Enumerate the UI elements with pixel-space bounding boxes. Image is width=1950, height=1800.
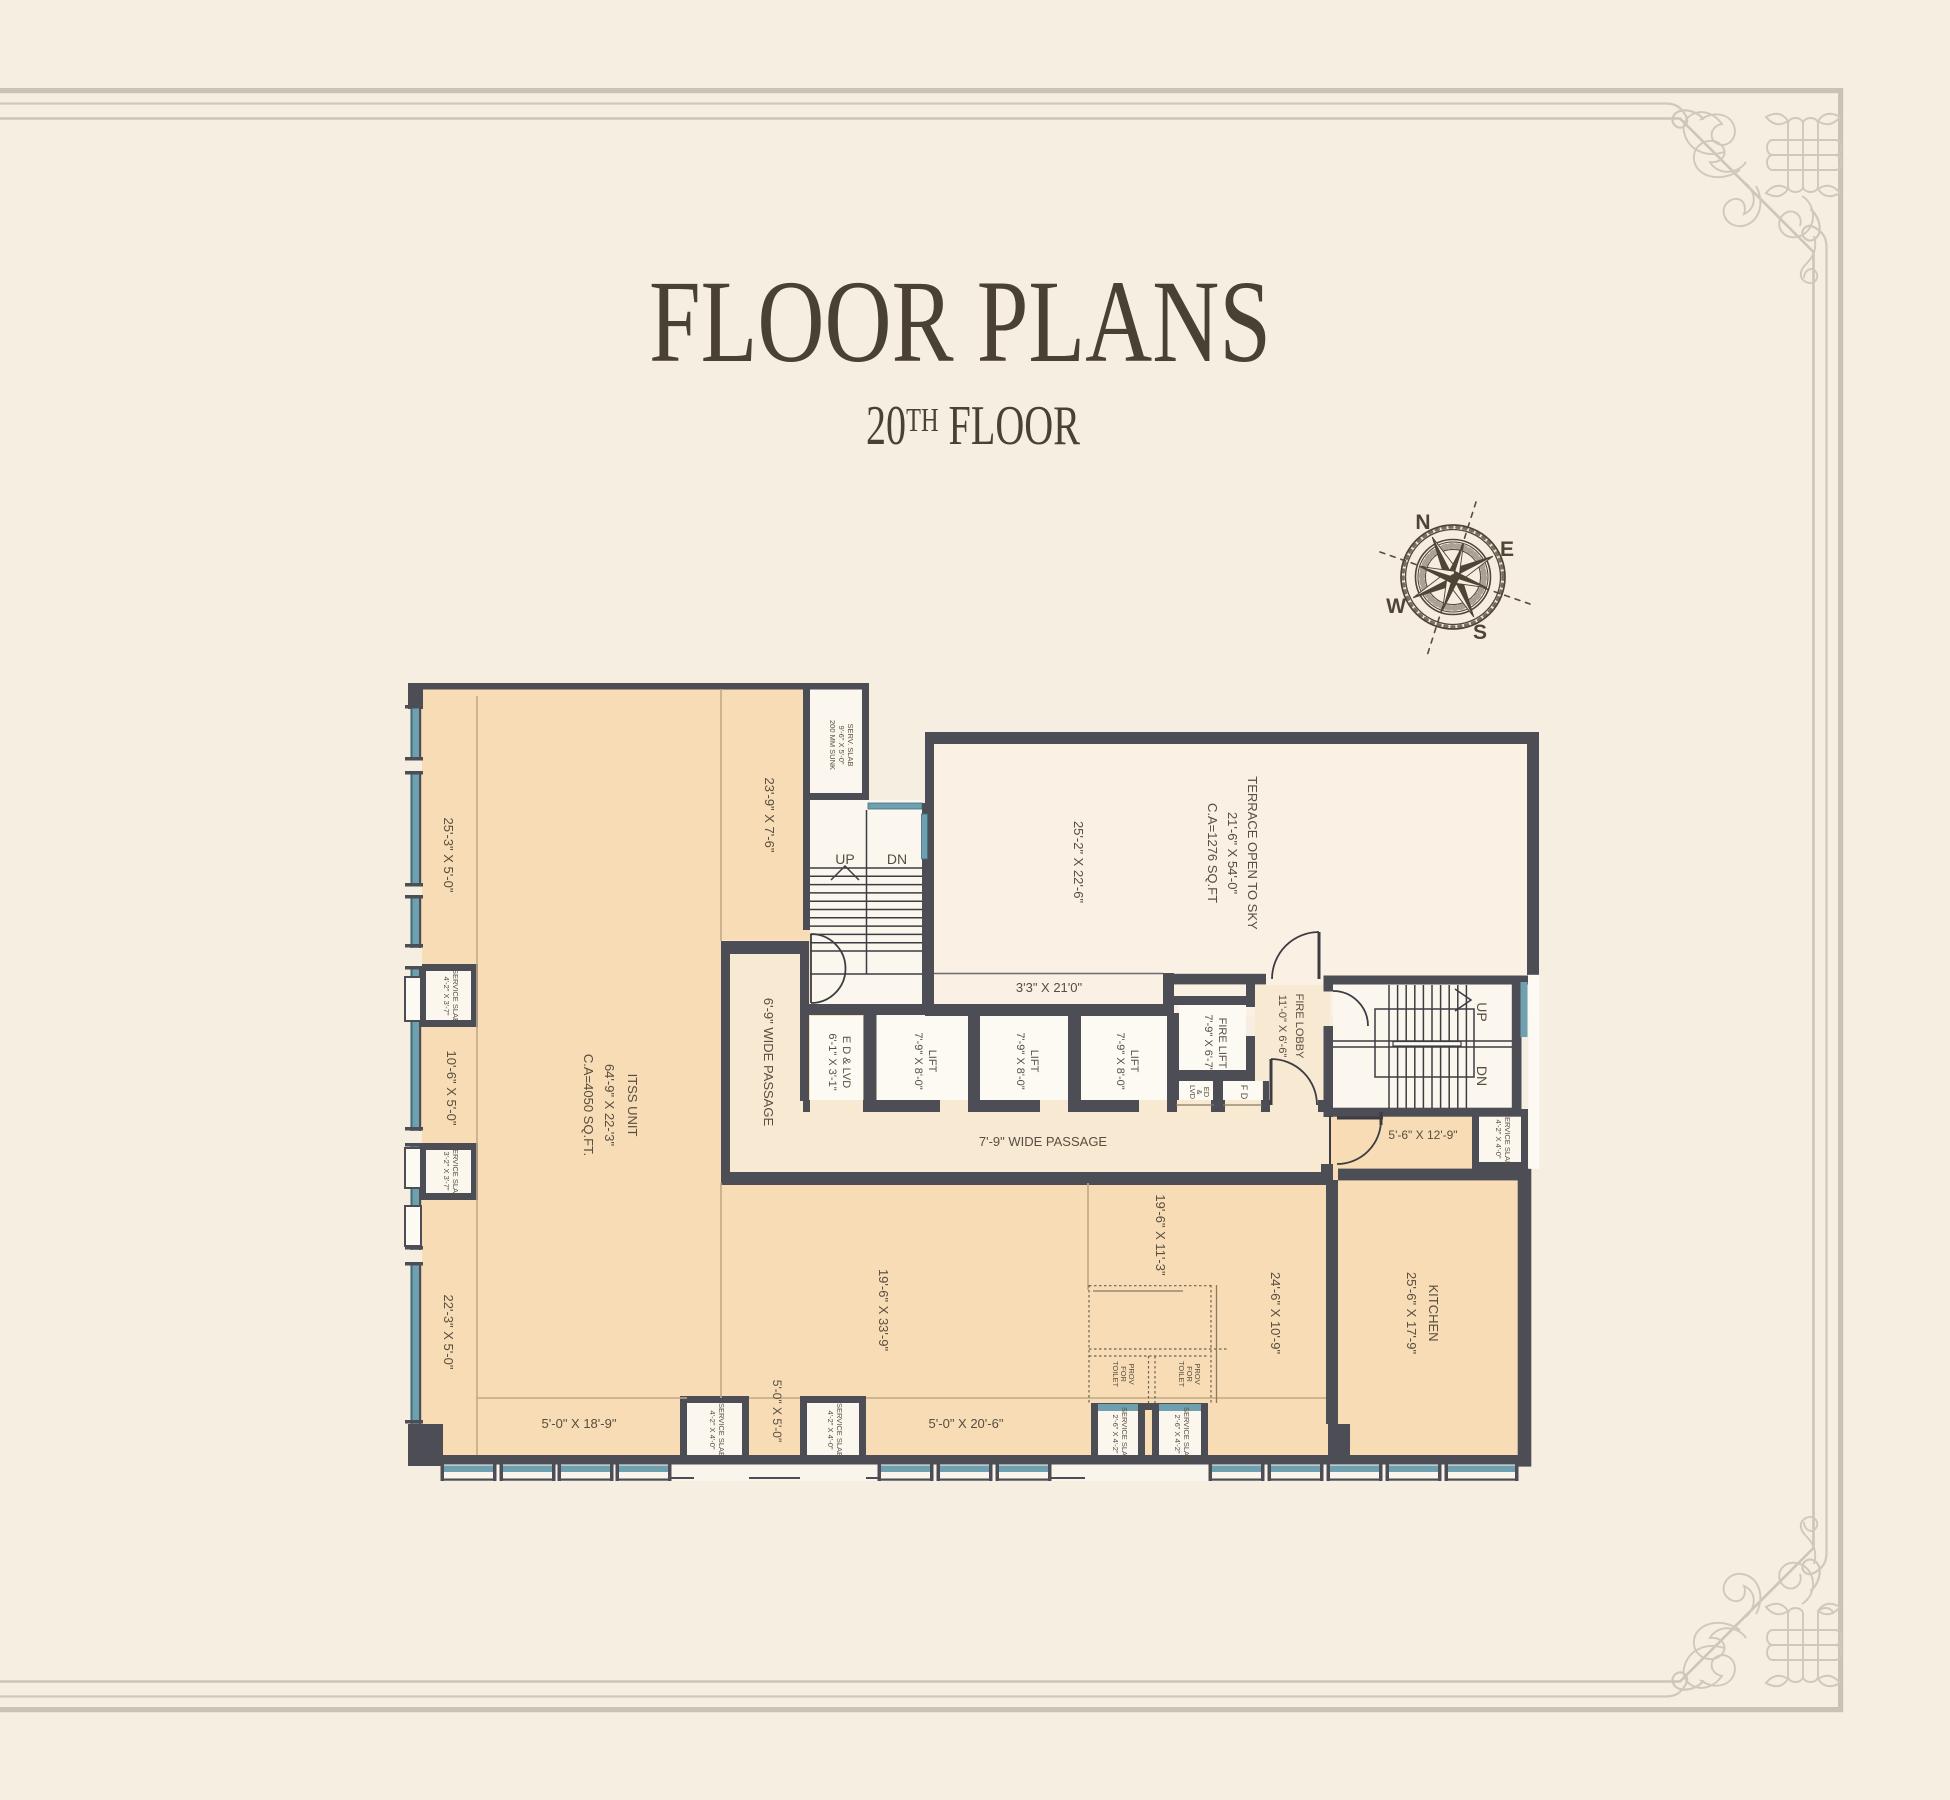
- svg-text:7'-9" X 8'-0": 7'-9" X 8'-0": [912, 1032, 924, 1089]
- svg-text:SERVICE SLAB: SERVICE SLAB: [451, 1144, 460, 1198]
- svg-text:KITCHEN: KITCHEN: [1426, 1284, 1441, 1341]
- svg-text:S: S: [1473, 621, 1487, 644]
- svg-text:6'-9" WIDE PASSAGE: 6'-9" WIDE PASSAGE: [761, 998, 776, 1127]
- svg-text:21'-6" X 54'-0": 21'-6" X 54'-0": [1225, 812, 1240, 895]
- svg-text:LVD: LVD: [1188, 1085, 1197, 1100]
- svg-text:10'-6" X 5'-0": 10'-6" X 5'-0": [444, 1051, 459, 1126]
- svg-text:7'-9" X 6'-7": 7'-9" X 6'-7": [1202, 1014, 1214, 1071]
- svg-text:19'-6" X 33'-9": 19'-6" X 33'-9": [876, 1269, 891, 1352]
- svg-text:UP: UP: [1474, 1002, 1490, 1021]
- svg-text:25'-3" X 5'-0": 25'-3" X 5'-0": [441, 818, 456, 893]
- svg-text:TOILET: TOILET: [1177, 1361, 1186, 1388]
- svg-text:F D: F D: [1239, 1085, 1249, 1100]
- svg-text:SERVICE SLAB: SERVICE SLAB: [1120, 1407, 1129, 1461]
- svg-text:FIRE LOBBY: FIRE LOBBY: [1293, 994, 1305, 1059]
- svg-text:25'-2" X 22'-6": 25'-2" X 22'-6": [1071, 821, 1086, 904]
- svg-text:200 MM SUNK: 200 MM SUNK: [828, 720, 837, 770]
- svg-text:3'3" X 21'0": 3'3" X 21'0": [1016, 980, 1083, 995]
- svg-text:9'-6" X 5'-0": 9'-6" X 5'-0": [837, 725, 846, 764]
- svg-text:5'-0" X 20'-6": 5'-0" X 20'-6": [929, 1416, 1004, 1431]
- svg-text:SERVICE SLAB: SERVICE SLAB: [1503, 1112, 1512, 1166]
- svg-text:2'-6" X 4'-2": 2'-6" X 4'-2": [1111, 1414, 1120, 1453]
- svg-text:4'-2" X 4'-0": 4'-2" X 4'-0": [708, 1410, 717, 1449]
- svg-text:6'-1" X 3'-1": 6'-1" X 3'-1": [826, 1033, 838, 1090]
- svg-text:W: W: [1386, 595, 1406, 618]
- svg-text:SERVICE SLAB: SERVICE SLAB: [1182, 1407, 1191, 1461]
- svg-text:UP: UP: [835, 851, 854, 867]
- svg-text:FLOOR PLANS: FLOOR PLANS: [649, 256, 1271, 387]
- svg-text:2'-6" X 4'-2": 2'-6" X 4'-2": [1173, 1414, 1182, 1453]
- svg-text:7'-9" WIDE PASSAGE: 7'-9" WIDE PASSAGE: [979, 1134, 1108, 1149]
- svg-text:4'-2" X 4'-0": 4'-2" X 4'-0": [1494, 1119, 1503, 1158]
- svg-text:25'-6" X 17'-9": 25'-6" X 17'-9": [1404, 1272, 1419, 1355]
- svg-text:TERRACE OPEN TO SKY: TERRACE OPEN TO SKY: [1245, 776, 1260, 930]
- svg-text:7'-9" X 8'-0": 7'-9" X 8'-0": [1114, 1032, 1126, 1089]
- svg-text:4'-2" X 3'-7": 4'-2" X 3'-7": [442, 976, 451, 1015]
- svg-text:FIRE LIFT: FIRE LIFT: [1216, 1018, 1228, 1069]
- svg-text:23'-9" X 7'-6": 23'-9" X 7'-6": [762, 778, 777, 853]
- svg-text:SERVICE SLAB: SERVICE SLAB: [451, 969, 460, 1023]
- svg-text:DN: DN: [887, 851, 907, 867]
- svg-text:24'-6" X 10'-9": 24'-6" X 10'-9": [1268, 1272, 1283, 1355]
- svg-text:SERV. SLAB: SERV. SLAB: [846, 724, 855, 767]
- svg-text:5'-0" X 5'-0": 5'-0" X 5'-0": [770, 1380, 784, 1442]
- svg-text:LIFT: LIFT: [1128, 1050, 1140, 1073]
- svg-text:3'-2" X 3'-7": 3'-2" X 3'-7": [442, 1151, 451, 1190]
- svg-text:SERVICE SLAB: SERVICE SLAB: [835, 1403, 844, 1457]
- svg-text:19'-6" X 11'-3": 19'-6" X 11'-3": [1153, 1194, 1168, 1276]
- svg-text:11'-0" X 6'-6": 11'-0" X 6'-6": [1276, 995, 1288, 1058]
- svg-text:64'-9" X 22-'3": 64'-9" X 22-'3": [602, 1064, 617, 1147]
- svg-text:E: E: [1500, 538, 1514, 561]
- svg-text:SERVICE SLAB: SERVICE SLAB: [717, 1403, 726, 1457]
- svg-text:C.A=4050 SQ.FT.: C.A=4050 SQ.FT.: [581, 1054, 596, 1156]
- svg-text:4'-2" X 4'-0": 4'-2" X 4'-0": [826, 1410, 835, 1449]
- svg-text:5'-0" X 18'-9": 5'-0" X 18'-9": [542, 1416, 617, 1431]
- svg-text:7'-9" X 8'-0": 7'-9" X 8'-0": [1014, 1032, 1026, 1089]
- svg-text:ITSS UNIT: ITSS UNIT: [625, 1074, 640, 1137]
- svg-text:20TH FLOOR: 20TH FLOOR: [866, 395, 1080, 457]
- svg-text:N: N: [1415, 511, 1430, 534]
- svg-text:C.A=1276 SQ.FT: C.A=1276 SQ.FT: [1205, 803, 1220, 903]
- svg-text:DN: DN: [1474, 1066, 1490, 1086]
- svg-text:LIFT: LIFT: [1028, 1050, 1040, 1073]
- svg-text:LIFT: LIFT: [926, 1050, 938, 1073]
- svg-text:E D & LVD: E D & LVD: [840, 1036, 852, 1088]
- svg-text:22'-3" X 5'-0": 22'-3" X 5'-0": [441, 1295, 456, 1370]
- svg-text:TOILET: TOILET: [1111, 1361, 1120, 1388]
- svg-text:5'-6" X 12'-9": 5'-6" X 12'-9": [1388, 1128, 1457, 1142]
